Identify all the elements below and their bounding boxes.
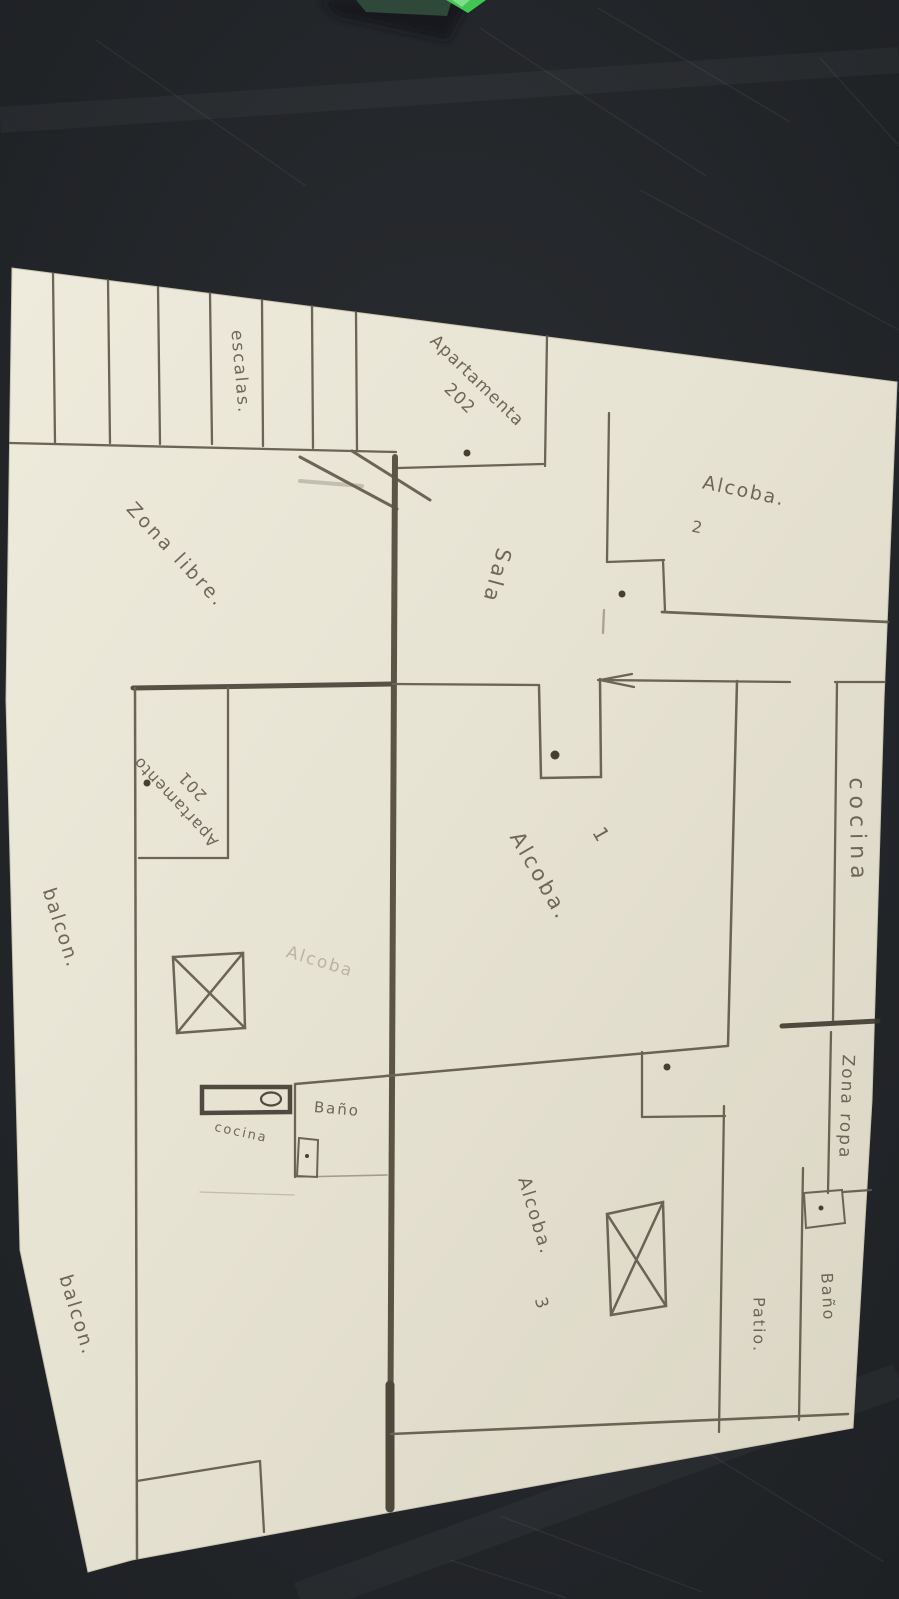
door-dot bbox=[619, 591, 626, 598]
door-dot bbox=[819, 1206, 824, 1211]
photo: escalas. Apartamenta 202 Sala Alcoba. 2 … bbox=[0, 0, 899, 1599]
door-dot bbox=[305, 1154, 309, 1158]
door-dot bbox=[551, 751, 560, 760]
paper-sheet bbox=[6, 268, 897, 1572]
door-dot bbox=[144, 780, 151, 787]
stair-tread bbox=[356, 312, 357, 450]
door-dot bbox=[664, 1064, 671, 1071]
stair-tread bbox=[262, 300, 263, 446]
stair-tread bbox=[312, 306, 313, 448]
floorplan-drawing bbox=[0, 0, 899, 1599]
door-dot bbox=[464, 450, 471, 457]
